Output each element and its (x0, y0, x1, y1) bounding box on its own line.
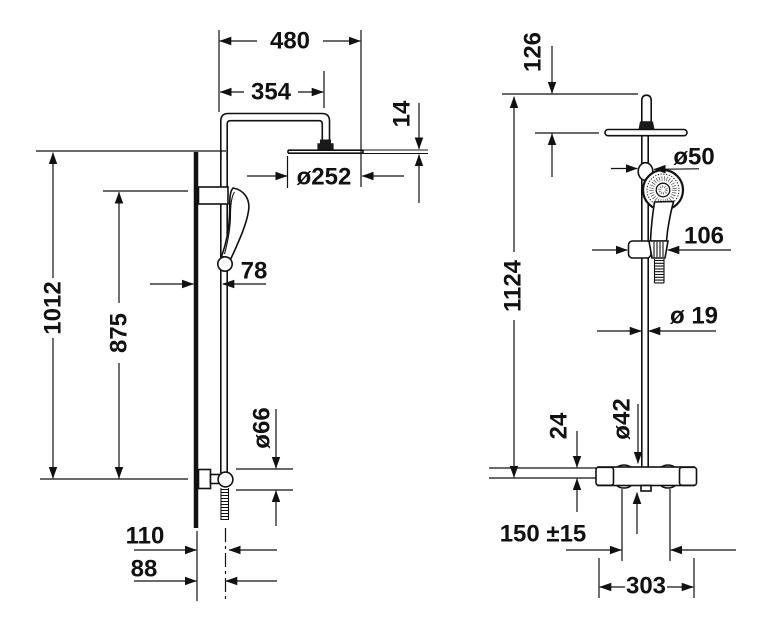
dim-slider-knob-diameter-label: ø50 (673, 144, 714, 171)
dim-head-plate-thickness: 14 (389, 100, 420, 203)
dim-holder-width-label: 106 (684, 223, 724, 250)
dim-arm-reach: 480 (220, 28, 360, 55)
side-view: 480 354 14 ø252 1012 (36, 28, 428, 602)
upper-wall-bracket (199, 187, 229, 204)
dim-bracket-diameter: ø66 (249, 407, 277, 526)
dim-inlet-spacing: 150 ±15 (500, 493, 736, 551)
valve-outlet (641, 486, 651, 492)
dim-valve-center-to-top: 24 (546, 412, 578, 512)
dim-head-diameter: ø252 (247, 164, 404, 191)
valve-handle-left (596, 467, 614, 485)
dim-pipe-diameter: ø 19 (597, 303, 718, 332)
dim-bracket-spacing-label: 875 (106, 313, 133, 353)
shower-hose-ribbed (221, 488, 229, 520)
overhead-shower-plate (288, 150, 363, 153)
dim-head-diameter-label: ø252 (297, 164, 352, 191)
dim-hose-wall-distance-inner-label: 88 (131, 556, 158, 583)
overhead-shower-plate-front (605, 130, 687, 136)
dim-wall-bar-height: 1012 (40, 153, 67, 479)
shower-hose-ribbed-front (655, 259, 665, 283)
dim-hose-wall-distance-outer-label: 110 (126, 523, 165, 550)
dim-head-center-offset: 354 (220, 79, 323, 106)
dim-rail-wall-distance: 78 (150, 258, 267, 285)
dim-slider-knob-diameter: ø50 (611, 144, 715, 171)
dim-head-plate-thickness-label: 14 (389, 100, 416, 127)
dim-valve-center-to-top-label: 24 (546, 412, 573, 439)
dim-bracket-diameter-label: ø66 (249, 407, 276, 448)
hand-shower-holder-cone (649, 241, 668, 258)
dim-hose-wall-distance-inner: 88 (131, 556, 277, 583)
dim-pipe-diameter-label: ø 19 (670, 303, 718, 330)
dim-total-height: 1124 (500, 97, 527, 478)
dim-inlet-spacing-label: 150 ±15 (500, 521, 587, 548)
pipe-top-cap (642, 95, 651, 122)
dim-bracket-spacing: 875 (106, 192, 133, 478)
dim-arm-reach-label: 480 (270, 28, 310, 55)
hand-shower-holder (629, 241, 652, 258)
hand-shower-handle (651, 202, 674, 242)
hand-shower-slider-ball (218, 257, 232, 271)
shower-system-dimension-drawing: 480 354 14 ø252 1012 (0, 0, 779, 630)
dim-valve-body-diameter-label: ø42 (609, 398, 636, 439)
pipe-cap-nut (639, 122, 655, 130)
head-connector-nut (317, 140, 333, 150)
dim-wall-bar-height-label: 1012 (40, 281, 67, 334)
dim-valve-overall-width-label: 303 (626, 573, 666, 600)
lower-wall-bracket-plate (199, 470, 211, 489)
dim-head-center-offset-label: 354 (251, 79, 292, 106)
thermostat-valve (596, 465, 697, 491)
dim-head-below-top: 126 (520, 32, 553, 177)
dim-head-below-top-label: 126 (520, 32, 547, 72)
dim-valve-body-diameter: ø42 (609, 398, 639, 463)
dim-hose-wall-distance-outer: 110 (126, 523, 277, 551)
shower-arm-inner (227, 121, 322, 160)
lower-bracket-ball-joint (218, 472, 233, 487)
front-view: 126 1124 ø50 106 ø 19 (489, 32, 736, 600)
dim-total-height-label: 1124 (500, 259, 527, 312)
technical-drawing-page: 480 354 14 ø252 1012 (0, 0, 779, 630)
dim-rail-wall-distance-label: 78 (241, 258, 268, 285)
dim-valve-overall-width: 303 (600, 573, 693, 600)
valve-handle-right (680, 467, 697, 485)
